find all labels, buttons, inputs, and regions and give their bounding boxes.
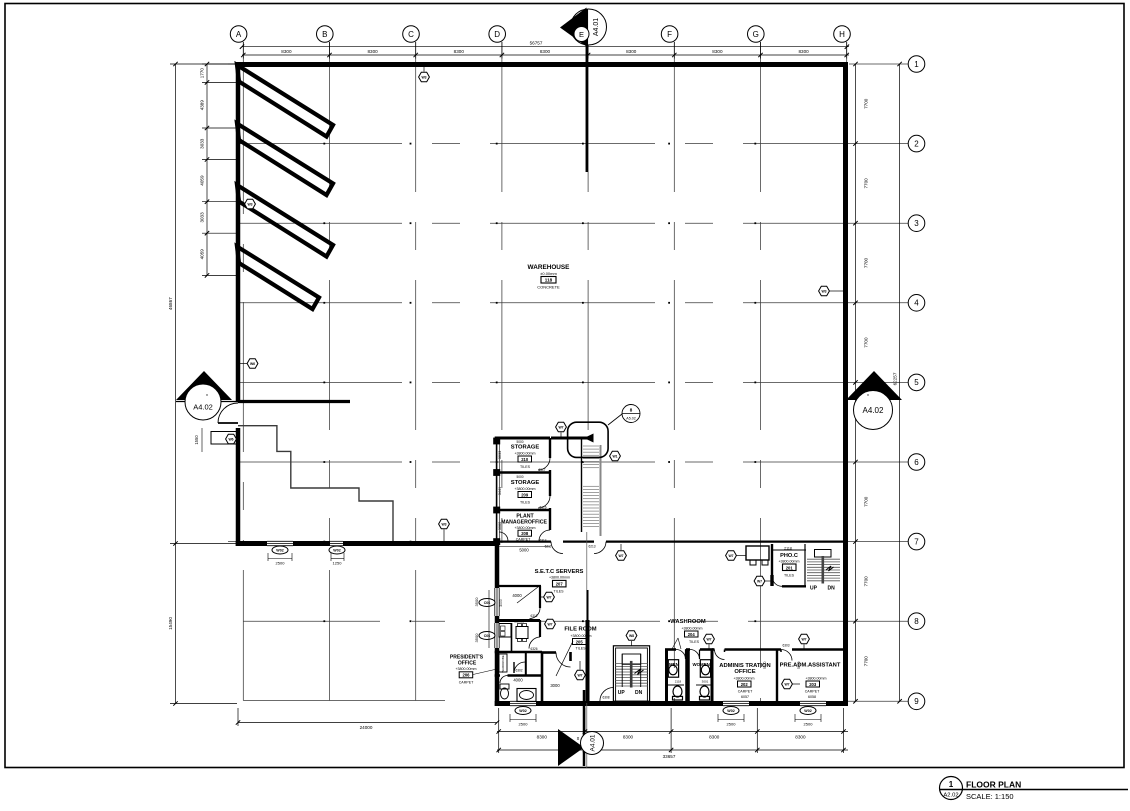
svg-text:W7: W7 (577, 674, 582, 678)
svg-text:6211: 6211 (545, 545, 552, 549)
svg-text:4: 4 (914, 299, 919, 308)
svg-text:W1: W1 (612, 455, 617, 459)
svg-text:2500: 2500 (727, 722, 737, 727)
svg-text:E: E (579, 30, 584, 39)
svg-text:2500: 2500 (519, 722, 529, 727)
svg-text:4059: 4059 (200, 175, 205, 186)
svg-text:210: 210 (521, 457, 529, 462)
svg-text:A4.02: A4.02 (193, 403, 213, 412)
svg-text:3033: 3033 (498, 451, 502, 459)
svg-text:x: x (867, 392, 869, 397)
svg-text:W8: W8 (629, 634, 634, 638)
svg-text:D: D (494, 30, 500, 39)
svg-text:6312: 6312 (530, 614, 537, 618)
svg-text:6058: 6058 (808, 695, 816, 699)
svg-text:MANAGEROFFICE: MANAGEROFFICE (501, 520, 547, 526)
svg-text:8300: 8300 (712, 49, 723, 54)
svg-text:7700: 7700 (864, 337, 869, 348)
svg-text:+3800.00mm: +3800.00mm (733, 677, 754, 681)
svg-text:W7: W7 (757, 580, 762, 584)
svg-text:W02: W02 (727, 709, 734, 713)
svg-text:8300: 8300 (709, 735, 720, 740)
svg-text:TILES: TILES (576, 647, 587, 651)
svg-text:OFFICE: OFFICE (458, 661, 477, 667)
svg-text:7700: 7700 (864, 98, 869, 109)
svg-text:4000: 4000 (512, 593, 522, 598)
svg-text:C06: C06 (484, 601, 491, 605)
svg-text:W7: W7 (728, 554, 733, 558)
svg-text:+3800.00mm: +3800.00mm (514, 452, 535, 456)
svg-text:W7: W7 (546, 596, 551, 600)
svg-text:3500: 3500 (474, 633, 479, 643)
svg-text:201: 201 (786, 565, 794, 570)
svg-text:8: 8 (914, 617, 919, 626)
svg-text:209: 209 (521, 492, 529, 497)
svg-text:WOMEN: WOMEN (693, 662, 710, 667)
svg-text:TILES: TILES (520, 465, 531, 469)
svg-text:W6: W6 (228, 438, 233, 442)
svg-text:3441: 3441 (498, 487, 502, 495)
svg-text:W7: W7 (558, 426, 563, 430)
svg-text:W02: W02 (333, 548, 340, 552)
svg-text:DN: DN (635, 690, 643, 696)
svg-text:24000: 24000 (360, 725, 373, 730)
svg-text:C06: C06 (484, 634, 491, 638)
svg-text:W6: W6 (250, 362, 255, 366)
svg-text:C: C (408, 30, 414, 39)
svg-text:7700: 7700 (864, 576, 869, 587)
svg-text:CARPET: CARPET (459, 681, 474, 685)
svg-text:8300: 8300 (537, 735, 548, 740)
svg-text:46867: 46867 (168, 297, 173, 310)
svg-text:6316: 6316 (539, 506, 546, 510)
svg-text:8300: 8300 (626, 49, 637, 54)
svg-text:H: H (839, 30, 845, 39)
svg-text:8300: 8300 (623, 735, 634, 740)
svg-text:1770: 1770 (200, 68, 205, 79)
svg-text:TILES: TILES (784, 574, 795, 578)
svg-text:8300: 8300 (454, 49, 465, 54)
svg-text:W02: W02 (804, 709, 811, 713)
svg-text:CONCRETE: CONCRETE (537, 285, 560, 290)
svg-text:4389: 4389 (200, 100, 205, 111)
svg-text:+3800.00mm: +3800.00mm (681, 627, 702, 631)
svg-text:6302: 6302 (515, 669, 522, 673)
svg-text:W7: W7 (547, 623, 552, 627)
svg-text:GLASS: GLASS (514, 620, 524, 624)
svg-text:6057: 6057 (741, 695, 749, 699)
svg-text:W3: W3 (441, 523, 446, 527)
svg-text:6314: 6314 (539, 539, 546, 543)
svg-text:W02: W02 (519, 709, 526, 713)
svg-text:206: 206 (463, 673, 471, 678)
svg-text:5: 5 (914, 378, 919, 387)
svg-text:W7: W7 (618, 554, 623, 558)
svg-text:6: 6 (914, 458, 919, 467)
svg-text:56757: 56757 (530, 41, 543, 46)
svg-text:x: x (206, 392, 208, 397)
svg-text:1550: 1550 (194, 435, 199, 445)
svg-text:8300: 8300 (367, 49, 378, 54)
svg-text:3500: 3500 (474, 597, 479, 607)
svg-text:3033: 3033 (200, 138, 205, 149)
svg-text:F: F (667, 30, 672, 39)
svg-text:8300: 8300 (798, 49, 809, 54)
svg-text:7700: 7700 (864, 178, 869, 189)
svg-text:8300: 8300 (281, 49, 292, 54)
svg-text:4000: 4000 (513, 678, 523, 683)
svg-text:+3800.00mm: +3800.00mm (549, 576, 570, 580)
svg-text:WAREHOUSE: WAREHOUSE (528, 264, 571, 271)
svg-text:G: G (753, 30, 759, 39)
svg-text:CARPET: CARPET (738, 690, 753, 694)
svg-text:W7: W7 (801, 638, 806, 642)
svg-text:A2.02: A2.02 (943, 793, 958, 799)
svg-text:+3800.00mm: +3800.00mm (514, 526, 535, 530)
svg-text:15490: 15490 (168, 617, 173, 630)
svg-text:7700: 7700 (864, 656, 869, 667)
svg-text:+3800.00mm: +3800.00mm (514, 487, 535, 491)
svg-text:7: 7 (914, 537, 919, 546)
svg-text:A4.01: A4.01 (593, 18, 600, 36)
svg-text:3: 3 (914, 219, 919, 228)
svg-text:5000: 5000 (519, 548, 529, 553)
svg-text:TILES: TILES (554, 589, 565, 593)
svg-text:OFFICE: OFFICE (734, 669, 755, 675)
svg-text:DN: DN (828, 586, 836, 592)
svg-text:203: 203 (809, 682, 817, 687)
svg-text:7700: 7700 (864, 496, 869, 507)
svg-text:2500: 2500 (276, 561, 286, 566)
svg-text:5000: 5000 (797, 661, 801, 669)
svg-text:+3800.00mm: +3800.00mm (455, 667, 476, 671)
svg-text:204: 204 (688, 632, 696, 637)
svg-text:PRE.ADM.ASSISTANT: PRE.ADM.ASSISTANT (780, 663, 841, 669)
svg-text:A4.02: A4.02 (863, 406, 884, 415)
svg-text:205: 205 (576, 639, 584, 644)
svg-text:207: 207 (556, 582, 564, 587)
svg-text:STORAGE: STORAGE (511, 480, 540, 486)
svg-text:6213: 6213 (588, 545, 595, 549)
svg-text:1: 1 (949, 780, 954, 789)
svg-text:W02: W02 (276, 548, 283, 552)
svg-text:6303: 6303 (782, 644, 789, 648)
svg-text:TILES: TILES (520, 501, 531, 505)
svg-text:5000: 5000 (763, 661, 767, 669)
svg-text:+3800.00mm: +3800.00mm (778, 559, 799, 563)
svg-text:6308: 6308 (602, 696, 609, 700)
svg-text:1: 1 (914, 60, 919, 69)
svg-text:W3: W3 (821, 290, 826, 294)
svg-text:2118: 2118 (675, 679, 682, 683)
svg-text:CARPET: CARPET (516, 538, 531, 542)
svg-text:118: 118 (545, 278, 553, 283)
svg-text:WARDROBE: WARDROBE (501, 655, 505, 673)
svg-text:W3: W3 (247, 203, 252, 207)
svg-text:UP: UP (810, 586, 818, 592)
svg-text:3033: 3033 (200, 212, 205, 223)
svg-text:208: 208 (521, 531, 529, 536)
svg-text:3000: 3000 (499, 599, 503, 607)
svg-text:W3: W3 (421, 76, 426, 80)
svg-text:2118: 2118 (784, 546, 792, 550)
svg-text:8300: 8300 (540, 49, 551, 54)
svg-text:9: 9 (914, 697, 919, 706)
svg-text:STORAGE: STORAGE (511, 445, 540, 451)
svg-text:SCALE: 1:150: SCALE: 1:150 (966, 792, 1014, 801)
svg-text:6317: 6317 (538, 468, 545, 472)
svg-text:8300: 8300 (795, 735, 806, 740)
svg-text:FILE ROOM: FILE ROOM (564, 627, 596, 633)
svg-text:202: 202 (741, 682, 749, 687)
svg-text:4059: 4059 (200, 249, 205, 260)
svg-text:A5.02: A5.02 (626, 417, 635, 421)
svg-text:33657: 33657 (663, 754, 676, 759)
svg-text:A4.01: A4.01 (590, 734, 597, 751)
svg-text:WASHROOM: WASHROOM (670, 619, 706, 625)
svg-text:A: A (236, 30, 242, 39)
svg-text:5000: 5000 (516, 475, 523, 479)
svg-text:6326: 6326 (530, 647, 537, 651)
svg-text:±0.00mm: ±0.00mm (540, 271, 557, 276)
svg-text:+3800.00mm: +3800.00mm (570, 634, 591, 638)
svg-text:1250: 1250 (333, 561, 343, 566)
svg-text:5000: 5000 (516, 440, 523, 444)
svg-text:2500: 2500 (804, 722, 814, 727)
svg-text:7700: 7700 (864, 257, 869, 268)
svg-text:FLOOR PLAN: FLOOR PLAN (966, 780, 1021, 790)
svg-text:2: 2 (914, 139, 919, 148)
svg-text:PHO.C: PHO.C (780, 553, 798, 559)
svg-text:3001: 3001 (702, 679, 709, 683)
svg-text:62257: 62257 (893, 372, 898, 385)
svg-text:MEN: MEN (669, 662, 679, 667)
svg-text:CARPET: CARPET (805, 690, 820, 694)
svg-text:W7: W7 (706, 638, 711, 642)
svg-text:W7: W7 (784, 683, 789, 687)
svg-text:3000: 3000 (550, 683, 560, 688)
svg-text:TILES: TILES (689, 640, 700, 644)
svg-text:B: B (322, 30, 327, 39)
svg-text:3060: 3060 (498, 522, 502, 530)
svg-text:+3800.00mm: +3800.00mm (805, 677, 826, 681)
svg-text:S.E.T.C SERVERS: S.E.T.C SERVERS (535, 569, 584, 575)
svg-text:UP: UP (618, 690, 626, 696)
